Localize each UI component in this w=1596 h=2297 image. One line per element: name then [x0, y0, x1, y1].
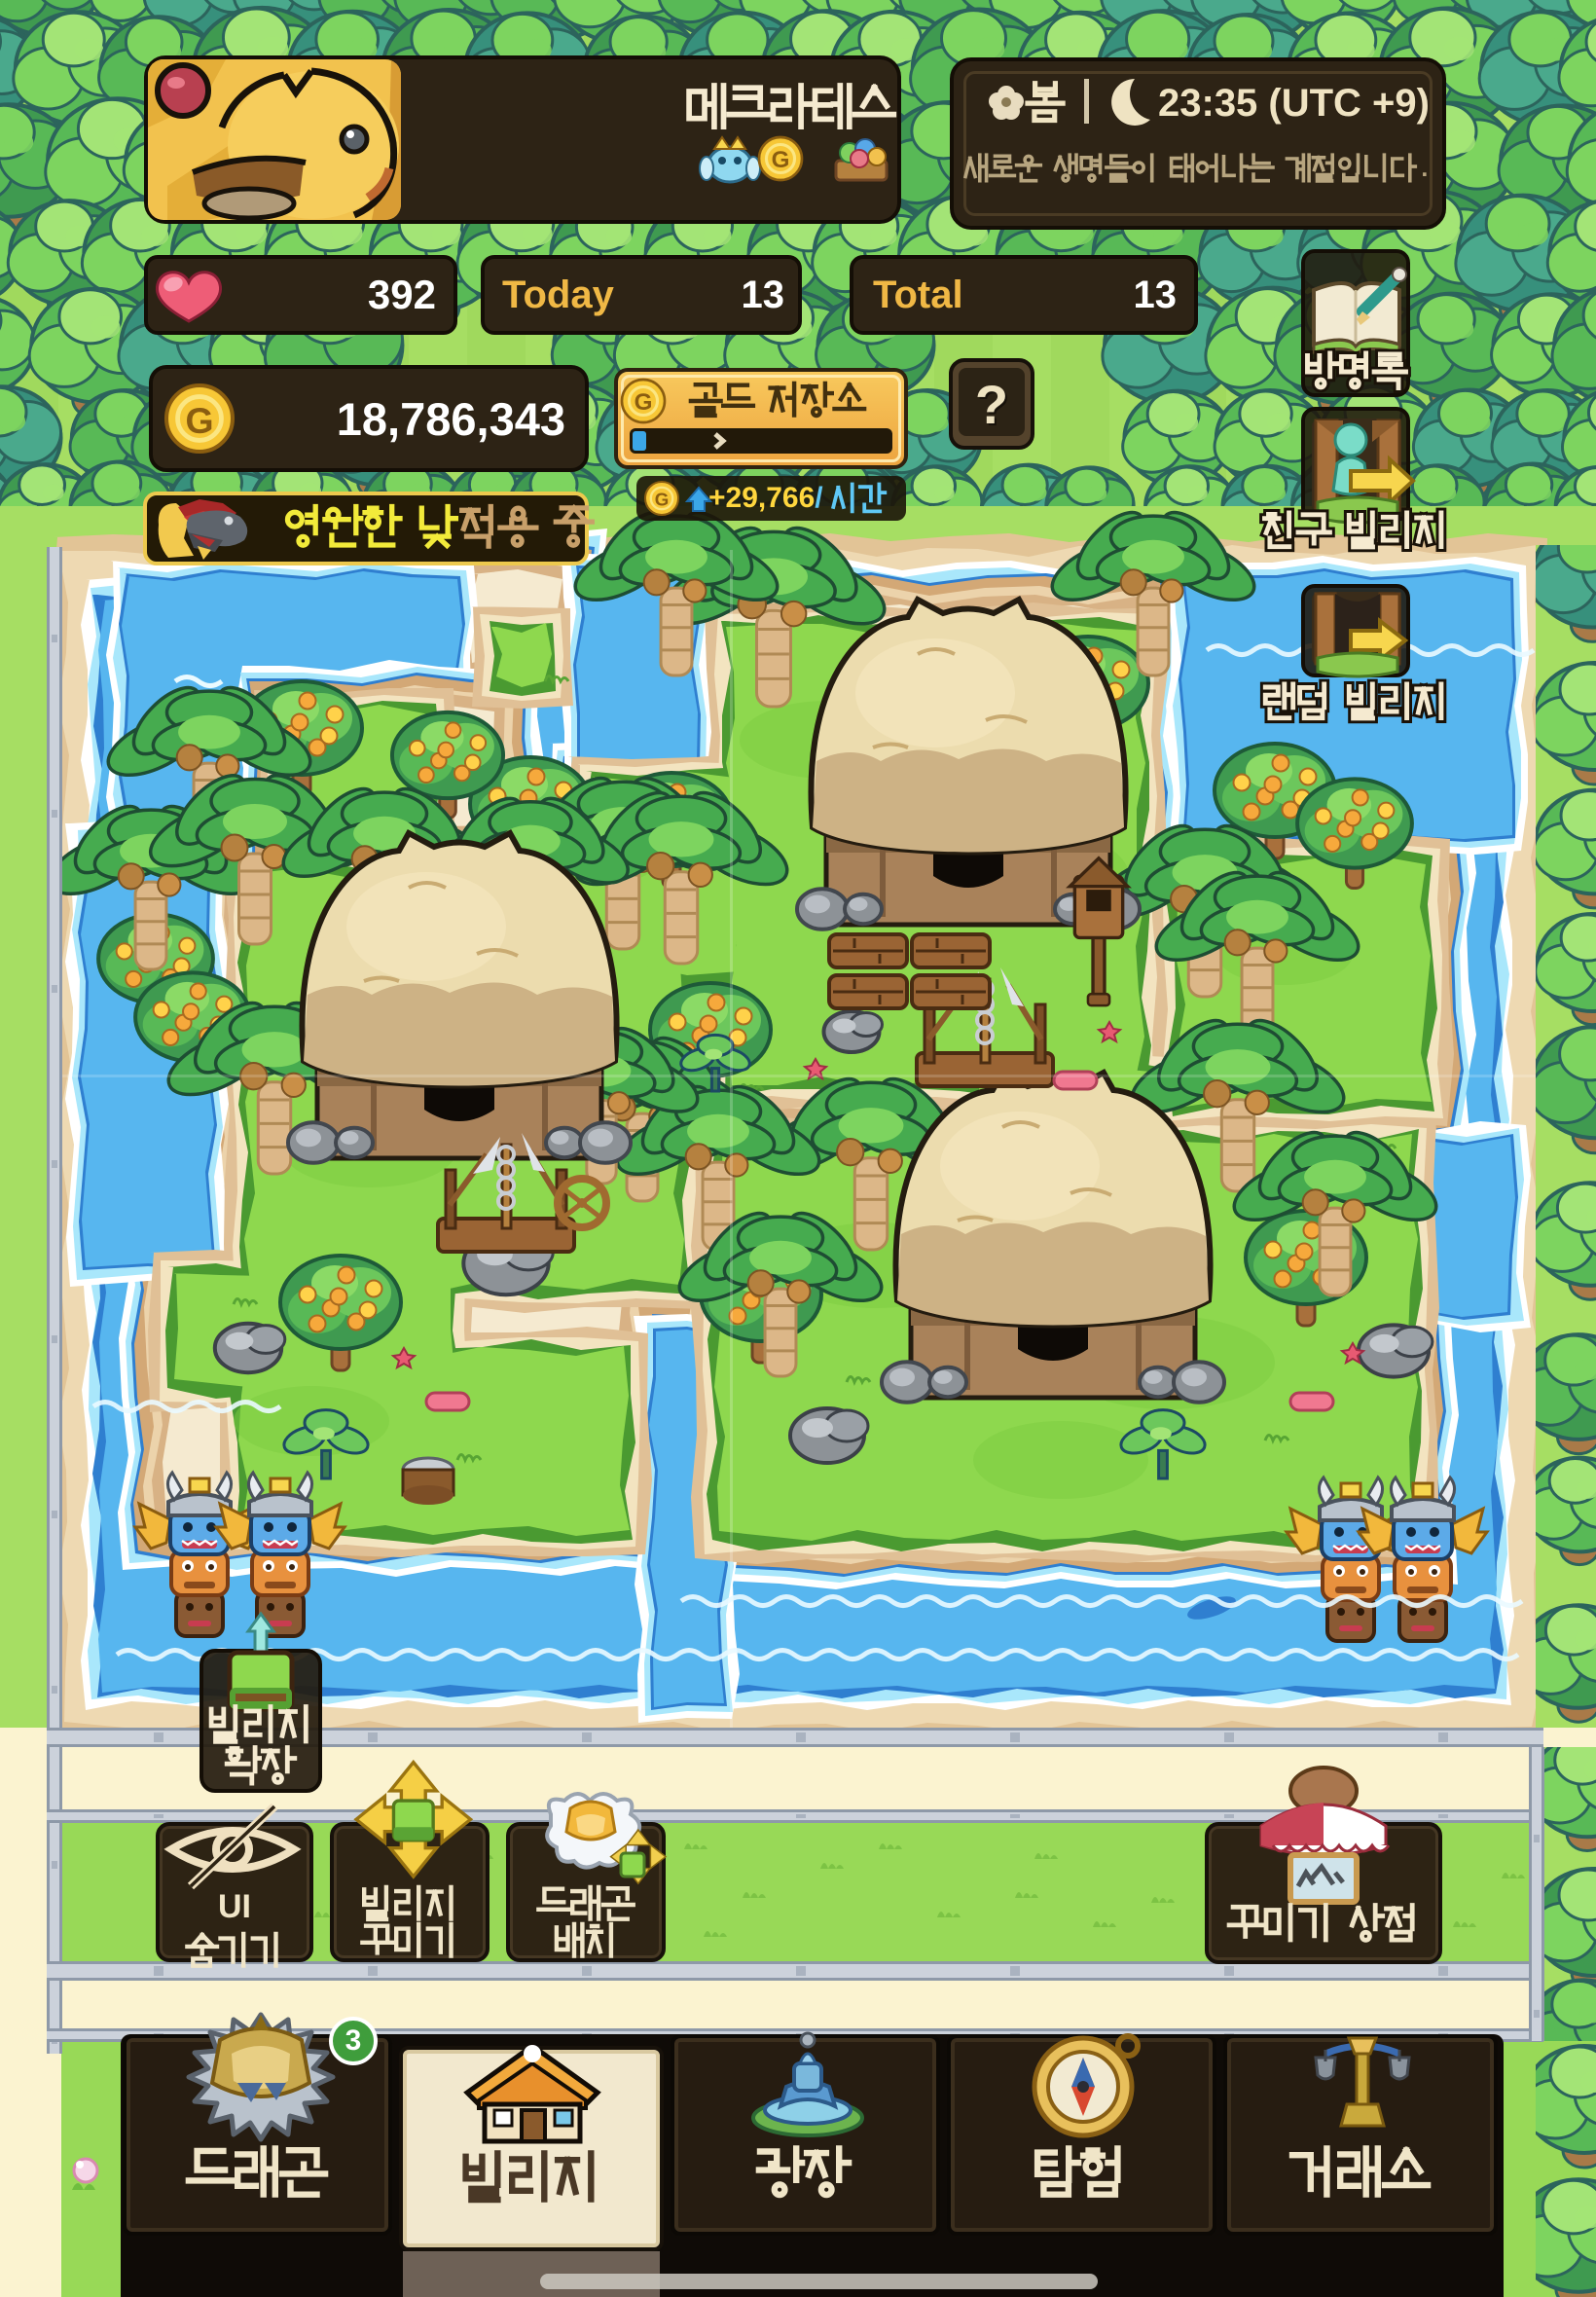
svg-text:23:35 (UTC +9): 23:35 (UTC +9)	[1158, 82, 1430, 125]
svg-text:UI: UI	[218, 1892, 251, 1925]
svg-text:G: G	[655, 490, 670, 510]
svg-text:G: G	[772, 147, 790, 173]
svg-text:G: G	[635, 389, 653, 416]
svg-text:.: .	[1421, 155, 1428, 182]
